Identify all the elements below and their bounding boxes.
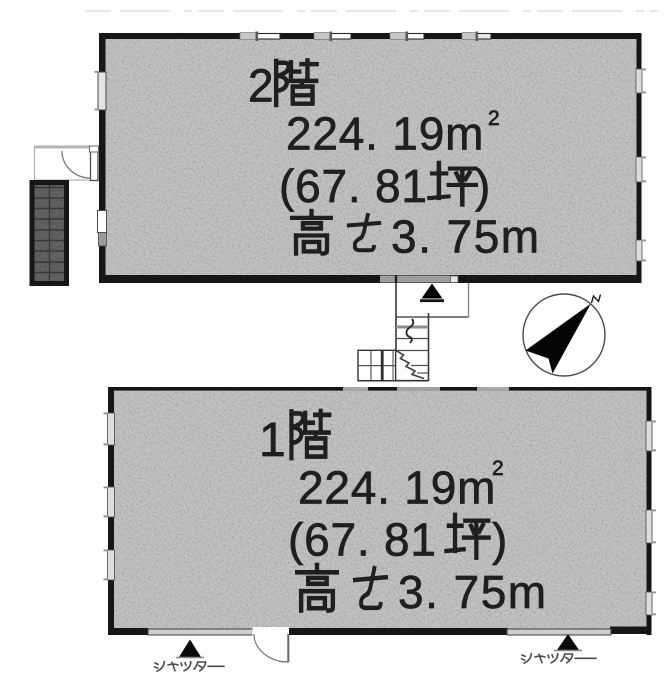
svg-text:224. 19m: 224. 19m xyxy=(298,462,496,514)
svg-text:(67. 81: (67. 81 xyxy=(288,514,437,566)
svg-text:): ) xyxy=(475,160,490,212)
svg-text:3. 75m: 3. 75m xyxy=(391,211,541,263)
svg-text:2: 2 xyxy=(488,107,500,130)
svg-text:1: 1 xyxy=(259,414,287,467)
svg-text:(67. 81: (67. 81 xyxy=(279,160,428,212)
svg-text:2: 2 xyxy=(492,457,504,480)
svg-text:2: 2 xyxy=(248,60,275,112)
svg-text:): ) xyxy=(492,514,507,566)
svg-text:3. 75m: 3. 75m xyxy=(398,566,548,618)
svg-text:224. 19m: 224. 19m xyxy=(286,108,484,160)
